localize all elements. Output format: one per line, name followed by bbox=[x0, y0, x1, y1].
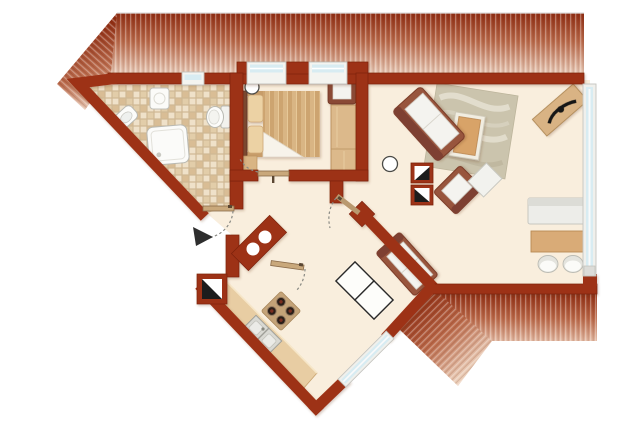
bed-bench bbox=[243, 156, 257, 171]
terrace-bottom bbox=[399, 291, 597, 386]
wardrobe bbox=[331, 105, 356, 172]
door-handle bbox=[299, 263, 303, 267]
panorama-window-right bbox=[583, 84, 596, 276]
wall-bedroom-bottom-left bbox=[230, 170, 258, 181]
door-handle bbox=[228, 205, 232, 208]
door-handle bbox=[272, 176, 274, 183]
floor-plan: Apartment floor plan with bathroom, bedr… bbox=[0, 0, 640, 427]
bed-pillow bbox=[248, 126, 263, 153]
bedroom-window-2 bbox=[309, 62, 347, 84]
wall-bathroom-hall bbox=[230, 181, 243, 209]
dining-chair bbox=[563, 256, 583, 273]
ceiling-light bbox=[383, 157, 398, 172]
entrance-arrow bbox=[193, 227, 213, 246]
duct-shaft-entrance bbox=[197, 274, 227, 304]
wall-bottom bbox=[428, 284, 597, 294]
bed-pillow bbox=[248, 95, 263, 122]
window-sill bbox=[584, 266, 595, 276]
wall-bedroom-living bbox=[356, 73, 368, 181]
bedroom-window-1 bbox=[247, 62, 286, 84]
dining-chair bbox=[538, 256, 558, 273]
wall-bedroom-bottom-right bbox=[289, 170, 368, 181]
toilet bbox=[207, 106, 231, 128]
bathroom-window bbox=[182, 72, 204, 85]
sink-tap bbox=[261, 327, 264, 330]
room-bathroom bbox=[88, 85, 230, 214]
wall-bathroom-bedroom bbox=[230, 73, 243, 181]
boiler-cabinet bbox=[150, 88, 169, 109]
lowboard bbox=[528, 198, 587, 224]
dining-table bbox=[531, 231, 587, 252]
